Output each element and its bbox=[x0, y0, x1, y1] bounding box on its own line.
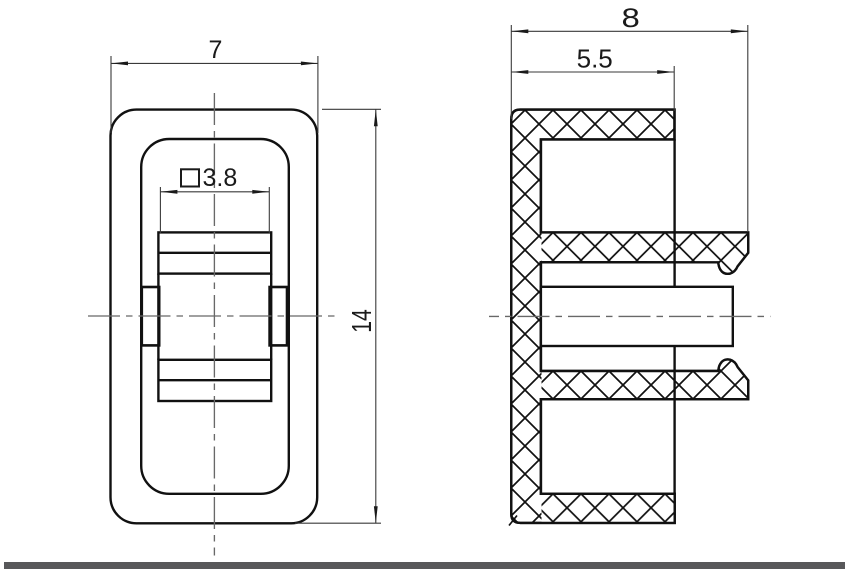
svg-text:3.8: 3.8 bbox=[203, 164, 238, 192]
svg-text:14: 14 bbox=[346, 309, 377, 333]
svg-text:7: 7 bbox=[208, 36, 222, 64]
svg-text:5.5: 5.5 bbox=[577, 43, 613, 73]
svg-text:8: 8 bbox=[622, 3, 640, 33]
